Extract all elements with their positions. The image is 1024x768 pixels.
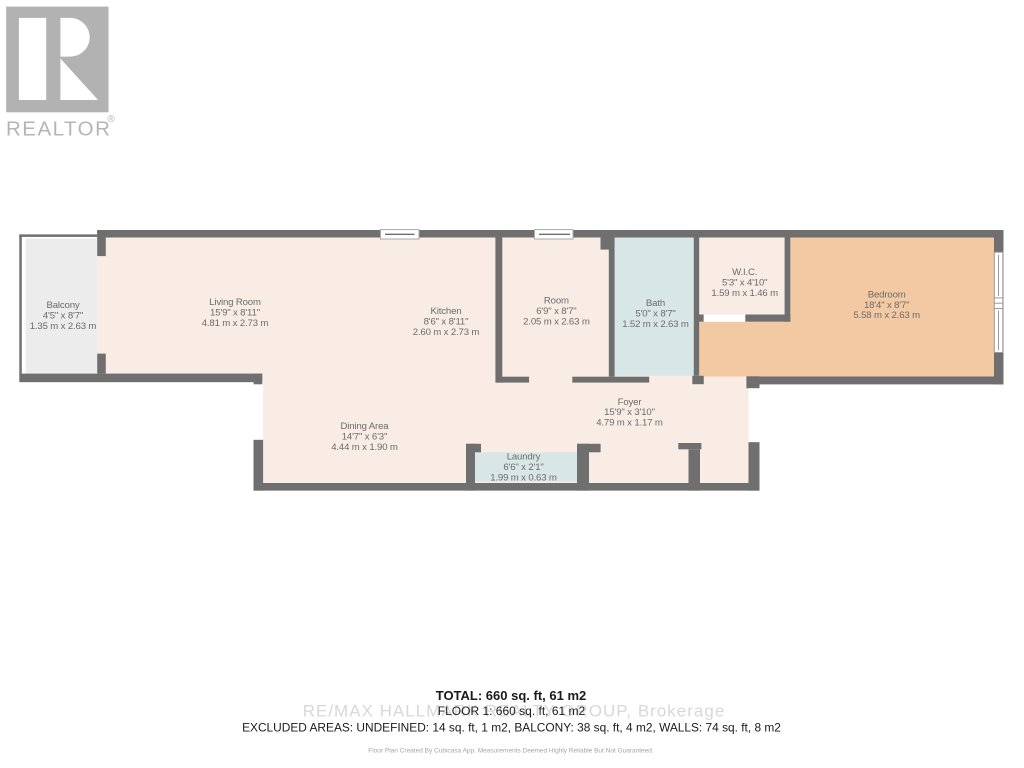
svg-text:14'7" x 6'3": 14'7" x 6'3" — [342, 432, 387, 443]
svg-text:1.99 m x 0.63 m: 1.99 m x 0.63 m — [490, 472, 557, 483]
svg-text:5'0" x 8'7": 5'0" x 8'7" — [635, 308, 675, 319]
svg-text:REALTOR: REALTOR — [6, 118, 111, 141]
svg-text:2.60 m x 2.73 m: 2.60 m x 2.73 m — [413, 327, 480, 338]
svg-text:15'9" x 8'11": 15'9" x 8'11" — [210, 307, 260, 318]
svg-text:Foyer: Foyer — [618, 397, 643, 408]
svg-text:4.79 m x 1.17 m: 4.79 m x 1.17 m — [596, 418, 663, 429]
svg-text:5.58 m x 2.63 m: 5.58 m x 2.63 m — [853, 310, 920, 321]
svg-text:15'9" x 3'10": 15'9" x 3'10" — [604, 407, 655, 418]
svg-text:EXCLUDED AREAS: UNDEFINED: 14: EXCLUDED AREAS: UNDEFINED: 14 sq. ft, 1 … — [242, 721, 781, 735]
svg-text:4.81 m x 2.73 m: 4.81 m x 2.73 m — [202, 318, 269, 329]
svg-text:TOTAL: 660 sq. ft, 61 m2: TOTAL: 660 sq. ft, 61 m2 — [436, 688, 587, 703]
svg-text:18'4" x 8'7": 18'4" x 8'7" — [864, 300, 909, 311]
svg-text:1.52 m x 2.63 m: 1.52 m x 2.63 m — [622, 319, 689, 330]
svg-text:8'6" x 8'11": 8'6" x 8'11" — [424, 317, 469, 328]
svg-text:®: ® — [108, 114, 116, 125]
svg-text:Bedroom: Bedroom — [868, 289, 906, 300]
svg-text:Room: Room — [544, 296, 569, 307]
svg-text:Bath: Bath — [646, 298, 665, 309]
svg-text:Laundry: Laundry — [507, 452, 541, 463]
svg-text:5'3" x 4'10": 5'3" x 4'10" — [722, 277, 767, 288]
svg-text:2.05 m x 2.63 m: 2.05 m x 2.63 m — [523, 317, 590, 328]
svg-text:4.44 m x 1.90 m: 4.44 m x 1.90 m — [331, 442, 398, 453]
svg-text:Living Room: Living Room — [209, 297, 261, 308]
svg-text:Kitchen: Kitchen — [431, 306, 462, 317]
svg-text:Balcony: Balcony — [46, 300, 79, 311]
svg-text:Floor Plan Created By Cubicasa: Floor Plan Created By Cubicasa App. Meas… — [368, 748, 654, 755]
svg-text:1.59 m x 1.46 m: 1.59 m x 1.46 m — [711, 288, 778, 299]
svg-text:Dining Area: Dining Area — [341, 421, 390, 432]
svg-text:W.I.C.: W.I.C. — [732, 267, 757, 278]
svg-text:1.35 m x 2.63 m: 1.35 m x 2.63 m — [30, 321, 97, 332]
svg-text:4'5" x 8'7": 4'5" x 8'7" — [43, 310, 83, 321]
svg-text:6'9" x 8'7": 6'9" x 8'7" — [536, 306, 576, 317]
svg-text:6'6" x 2'1": 6'6" x 2'1" — [503, 462, 543, 473]
svg-text:FLOOR 1: 660 sq. ft, 61 m2: FLOOR 1: 660 sq. ft, 61 m2 — [438, 704, 586, 718]
